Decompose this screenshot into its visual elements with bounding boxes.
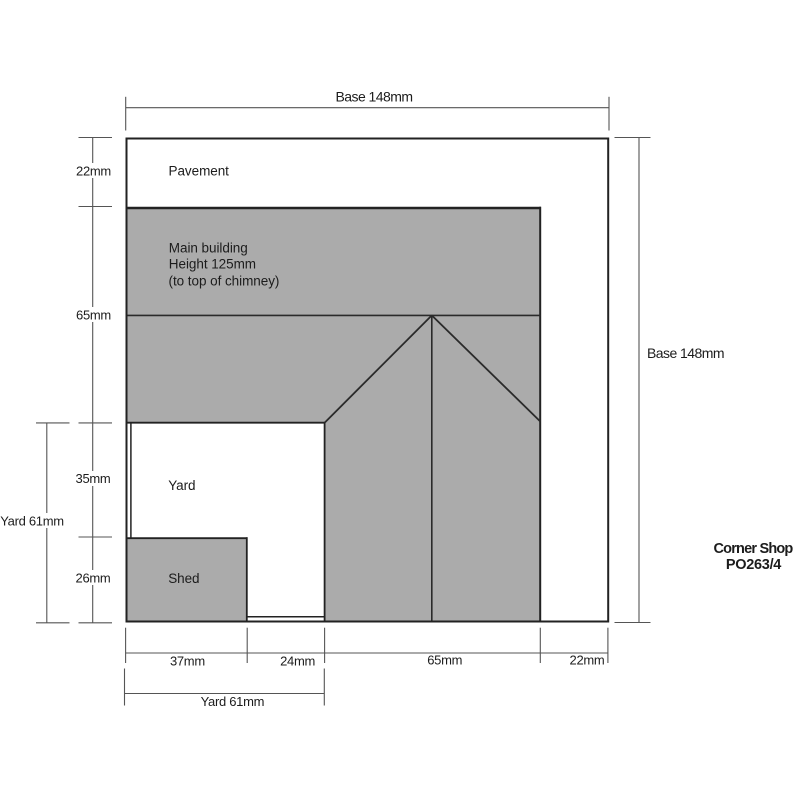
svg-text:35mm: 35mm [76, 471, 111, 486]
svg-text:22mm: 22mm [76, 163, 111, 178]
svg-text:Main building: Main building [169, 241, 248, 256]
svg-text:65mm: 65mm [76, 307, 111, 322]
svg-text:24mm: 24mm [280, 653, 315, 668]
svg-text:65mm: 65mm [427, 653, 462, 668]
svg-text:Base 148mm: Base 148mm [336, 89, 413, 105]
svg-text:Height 125mm: Height 125mm [169, 257, 256, 272]
svg-text:Yard 61mm: Yard 61mm [201, 694, 265, 709]
svg-text:(to top of chimney): (to top of chimney) [169, 274, 280, 289]
svg-text:37mm: 37mm [170, 653, 205, 668]
svg-text:Base 148mm: Base 148mm [647, 345, 724, 361]
svg-text:Yard 61mm: Yard 61mm [0, 513, 64, 528]
svg-text:PO263/4: PO263/4 [726, 557, 781, 573]
svg-text:Pavement: Pavement [169, 163, 230, 178]
svg-text:26mm: 26mm [76, 570, 111, 585]
svg-text:Shed: Shed [168, 571, 199, 586]
svg-text:22mm: 22mm [570, 653, 605, 668]
svg-text:Yard: Yard [168, 478, 195, 493]
svg-text:Corner Shop: Corner Shop [713, 541, 793, 557]
